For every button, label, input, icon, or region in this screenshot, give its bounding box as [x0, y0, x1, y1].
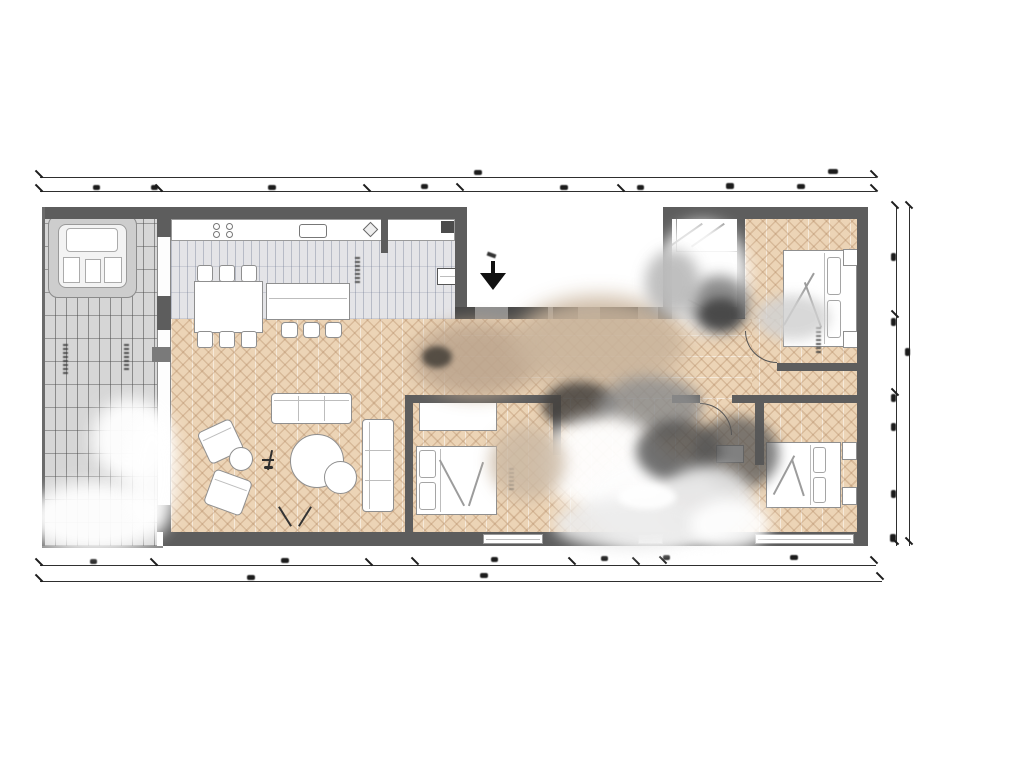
pillow — [813, 477, 826, 503]
sink-icon — [299, 224, 327, 238]
bar-stool — [281, 322, 298, 338]
wall-kitchen-partition — [381, 219, 388, 253]
dining-chair — [241, 331, 257, 348]
wall-midbedroom-top — [405, 395, 561, 403]
sofa-3-seat — [271, 393, 352, 424]
wardrobe — [419, 399, 497, 431]
pillow — [813, 447, 826, 473]
pillow — [419, 450, 436, 478]
hot-tub — [48, 215, 137, 298]
dining-table — [194, 281, 263, 333]
wall-terrace-bottom — [42, 546, 163, 548]
coffee-table-small — [324, 461, 357, 494]
cooktop-icon — [211, 222, 242, 239]
wall-top-left — [42, 207, 467, 219]
terrace-label-smudge-2 — [124, 342, 129, 370]
wall-bedroom2-top-a — [672, 395, 700, 403]
dining-chair — [197, 265, 213, 282]
pillow — [419, 482, 436, 510]
dining-chair — [219, 331, 235, 348]
dining-chair — [219, 265, 235, 282]
bar-stool — [325, 322, 342, 338]
pillow — [827, 300, 841, 338]
dining-chair — [197, 331, 213, 348]
wall-seg — [157, 219, 171, 237]
double-bed-bottom-right — [766, 442, 841, 508]
window-sill-block — [152, 347, 171, 362]
wall-cabinet — [441, 221, 454, 233]
desk — [716, 445, 744, 463]
wall-bedroom2-stub — [755, 403, 764, 465]
wall-top-right — [663, 207, 868, 219]
wall-bedroom1-south — [777, 363, 868, 371]
hallway-floor — [460, 319, 752, 399]
wall-midbedroom-left — [405, 395, 413, 540]
wall-seg — [455, 307, 475, 319]
wall-terrace-left — [42, 207, 45, 548]
chaise-sofa — [362, 419, 394, 512]
side-table — [229, 447, 253, 471]
wall-seg — [658, 307, 672, 319]
bar-stool — [303, 322, 320, 338]
plant-icon — [363, 222, 379, 238]
kitchen-island — [266, 283, 350, 320]
window-band-terrace — [157, 219, 171, 532]
wall-bathroom-bedroom — [737, 219, 745, 318]
wall-seg — [508, 307, 548, 319]
nightstand — [843, 249, 858, 266]
kitchen-counter — [171, 219, 455, 241]
wall-bedroom2-top-b — [732, 395, 868, 403]
wall-midbedroom-right — [553, 395, 561, 455]
window-bottom-3 — [755, 534, 854, 544]
double-bed-middle — [416, 446, 497, 515]
floor-plan-canvas — [0, 0, 1024, 768]
wall-recess-left — [455, 207, 467, 319]
pillow — [827, 257, 841, 295]
shower — [676, 216, 738, 252]
nightstand — [842, 487, 857, 505]
window-bottom-1 — [483, 534, 543, 544]
kitchen-label-smudge — [355, 257, 360, 283]
wall-seg — [600, 307, 638, 319]
wall-seg — [553, 307, 578, 319]
wall-right — [857, 207, 868, 546]
window-bottom-2 — [638, 534, 663, 544]
wall-seg — [157, 296, 171, 330]
bedroom-middle-label-smudge — [509, 466, 514, 490]
terrace-label-smudge-1 — [63, 342, 68, 374]
nightstand — [842, 442, 857, 460]
wall-seg — [157, 505, 171, 532]
dining-chair — [241, 265, 257, 282]
wall-recess-right — [663, 207, 672, 319]
nightstand — [843, 331, 858, 348]
bedroom-top-right-label-smudge — [816, 327, 821, 353]
